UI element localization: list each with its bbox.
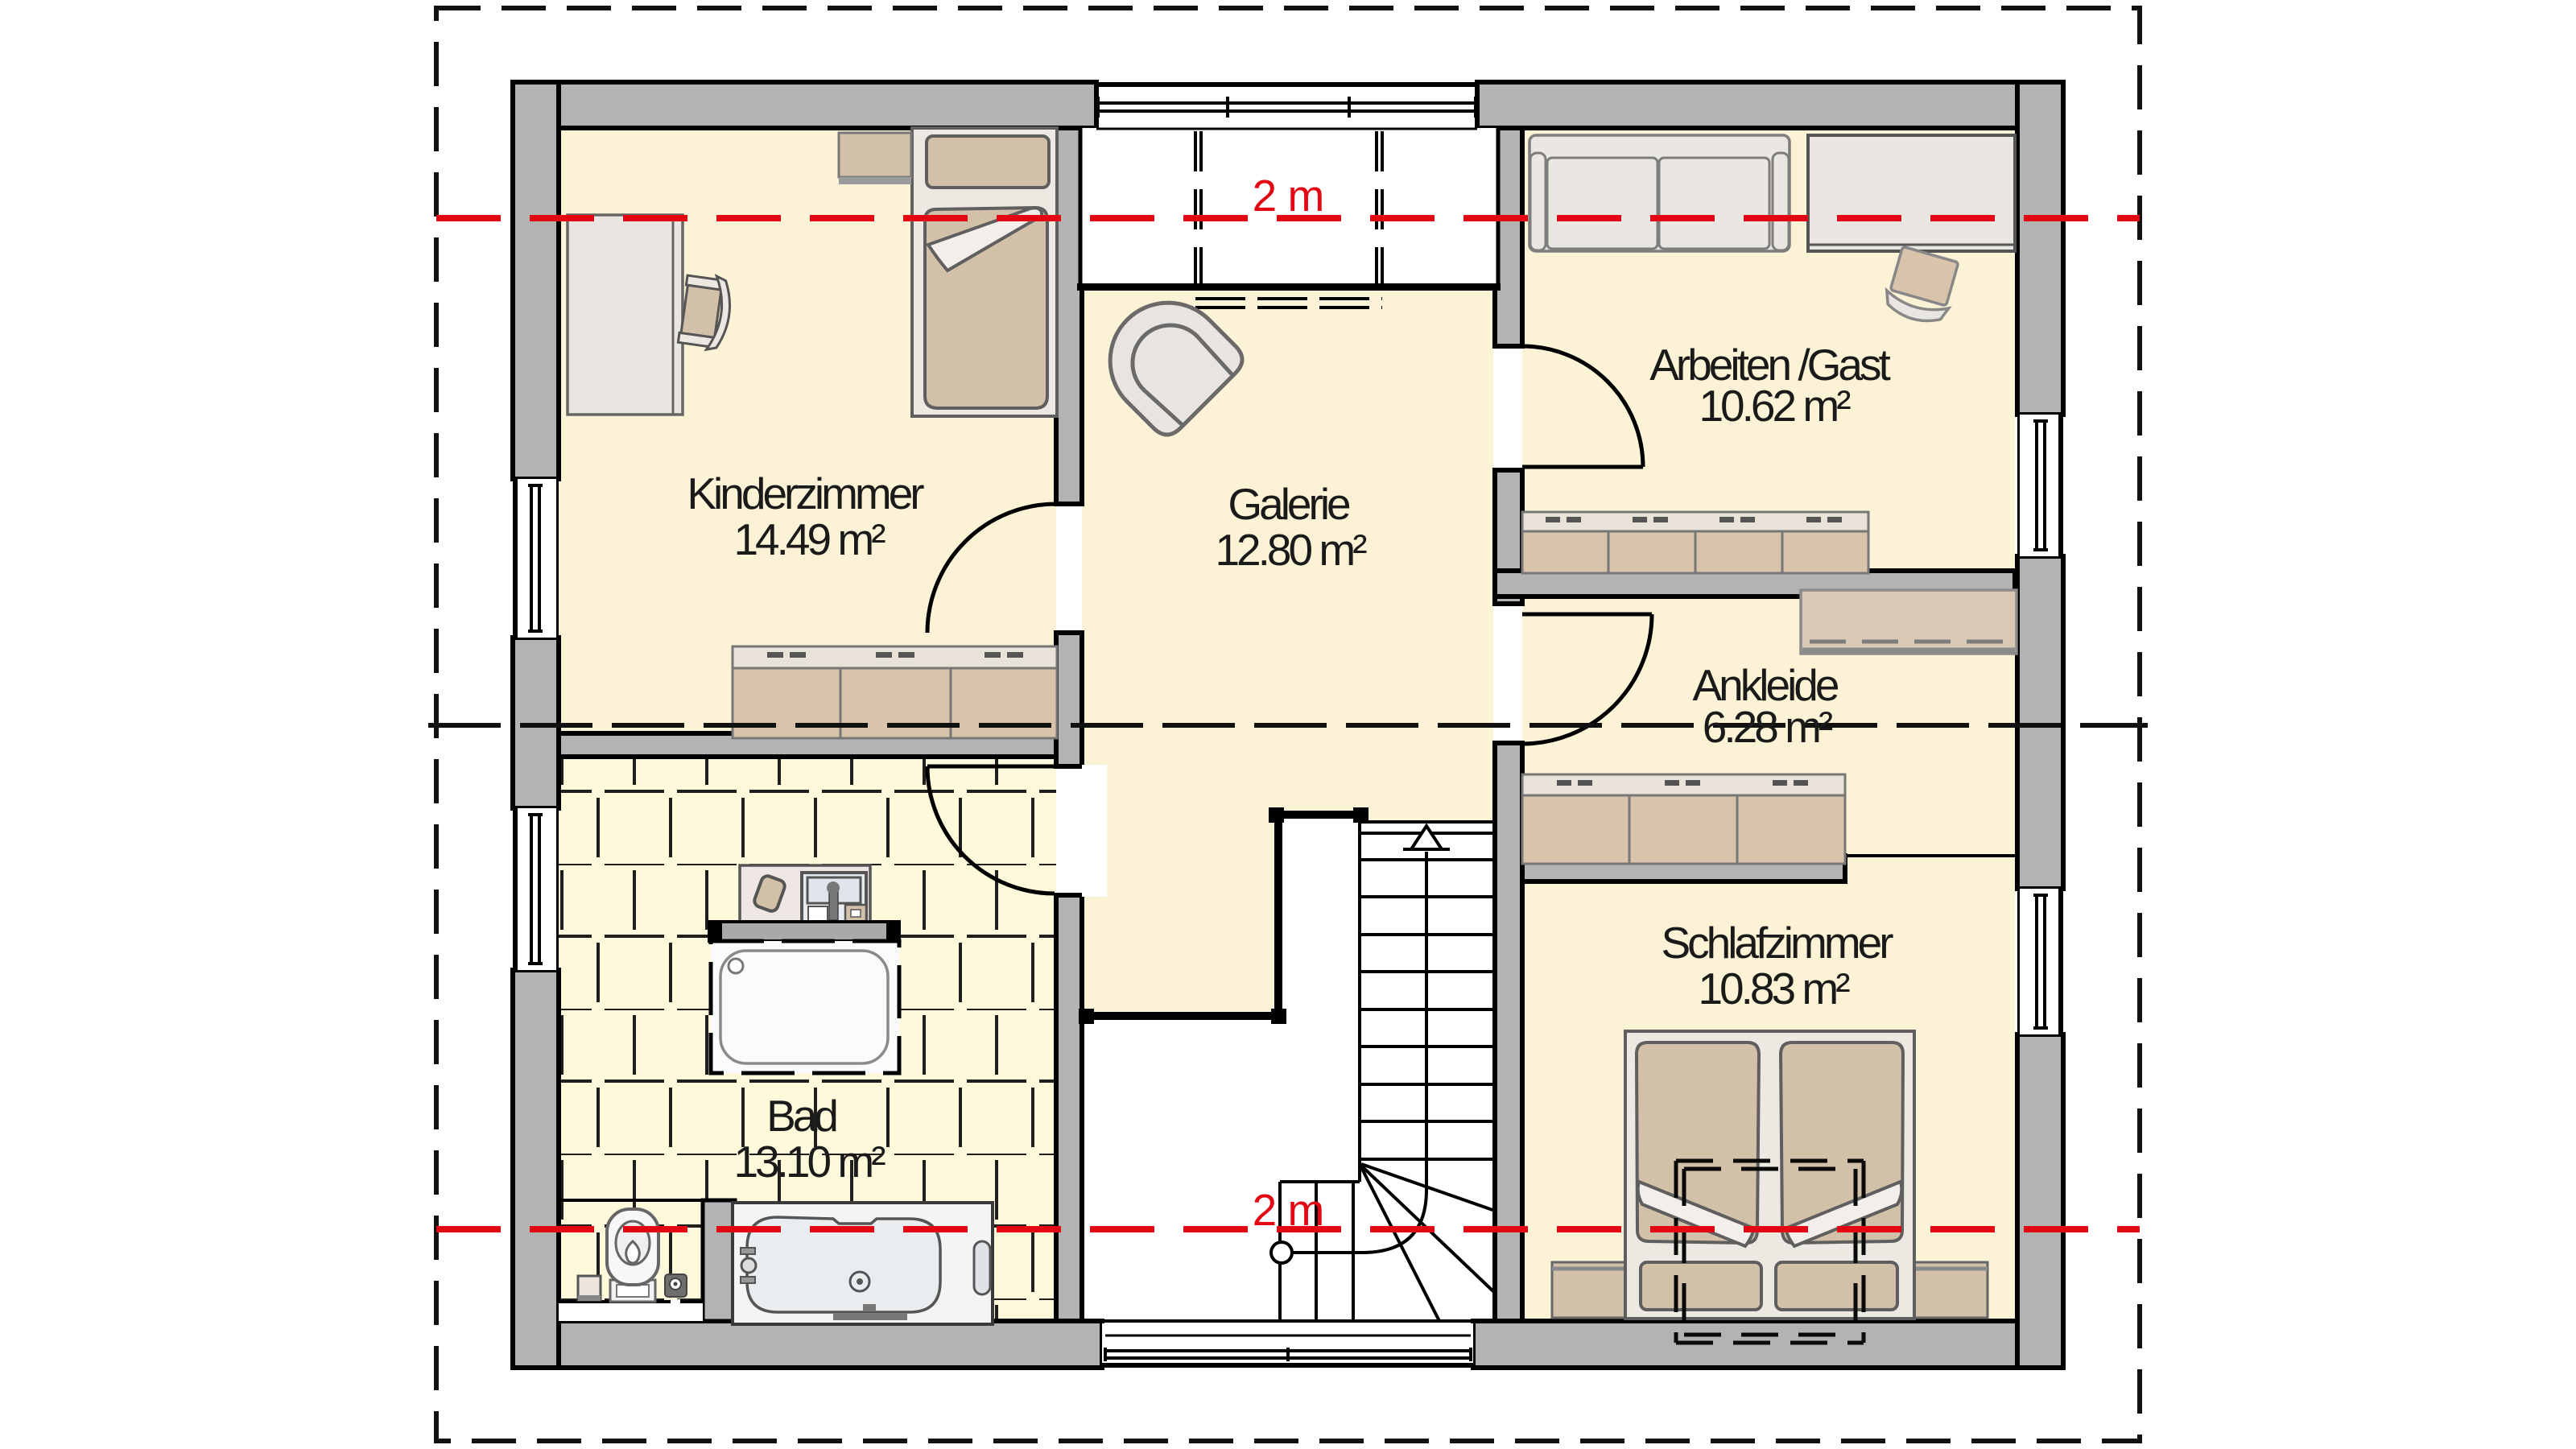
- svg-text:10.62 m²: 10.62 m²: [1699, 381, 1851, 431]
- svg-text:12.80 m²: 12.80 m²: [1215, 525, 1367, 575]
- svg-text:14.49 m²: 14.49 m²: [733, 514, 885, 564]
- svg-text:13.10 m²: 13.10 m²: [733, 1137, 885, 1187]
- svg-text:10.83 m²: 10.83 m²: [1698, 964, 1850, 1013]
- svg-text:2 m: 2 m: [1253, 1185, 1324, 1235]
- svg-text:Schlafzimmer: Schlafzimmer: [1661, 918, 1893, 968]
- svg-text:Galerie: Galerie: [1228, 479, 1350, 529]
- svg-text:6.28 m²: 6.28 m²: [1703, 702, 1833, 752]
- svg-text:Kinderzimmer: Kinderzimmer: [687, 469, 924, 518]
- svg-text:2 m: 2 m: [1253, 171, 1324, 221]
- svg-text:Bad: Bad: [766, 1091, 836, 1141]
